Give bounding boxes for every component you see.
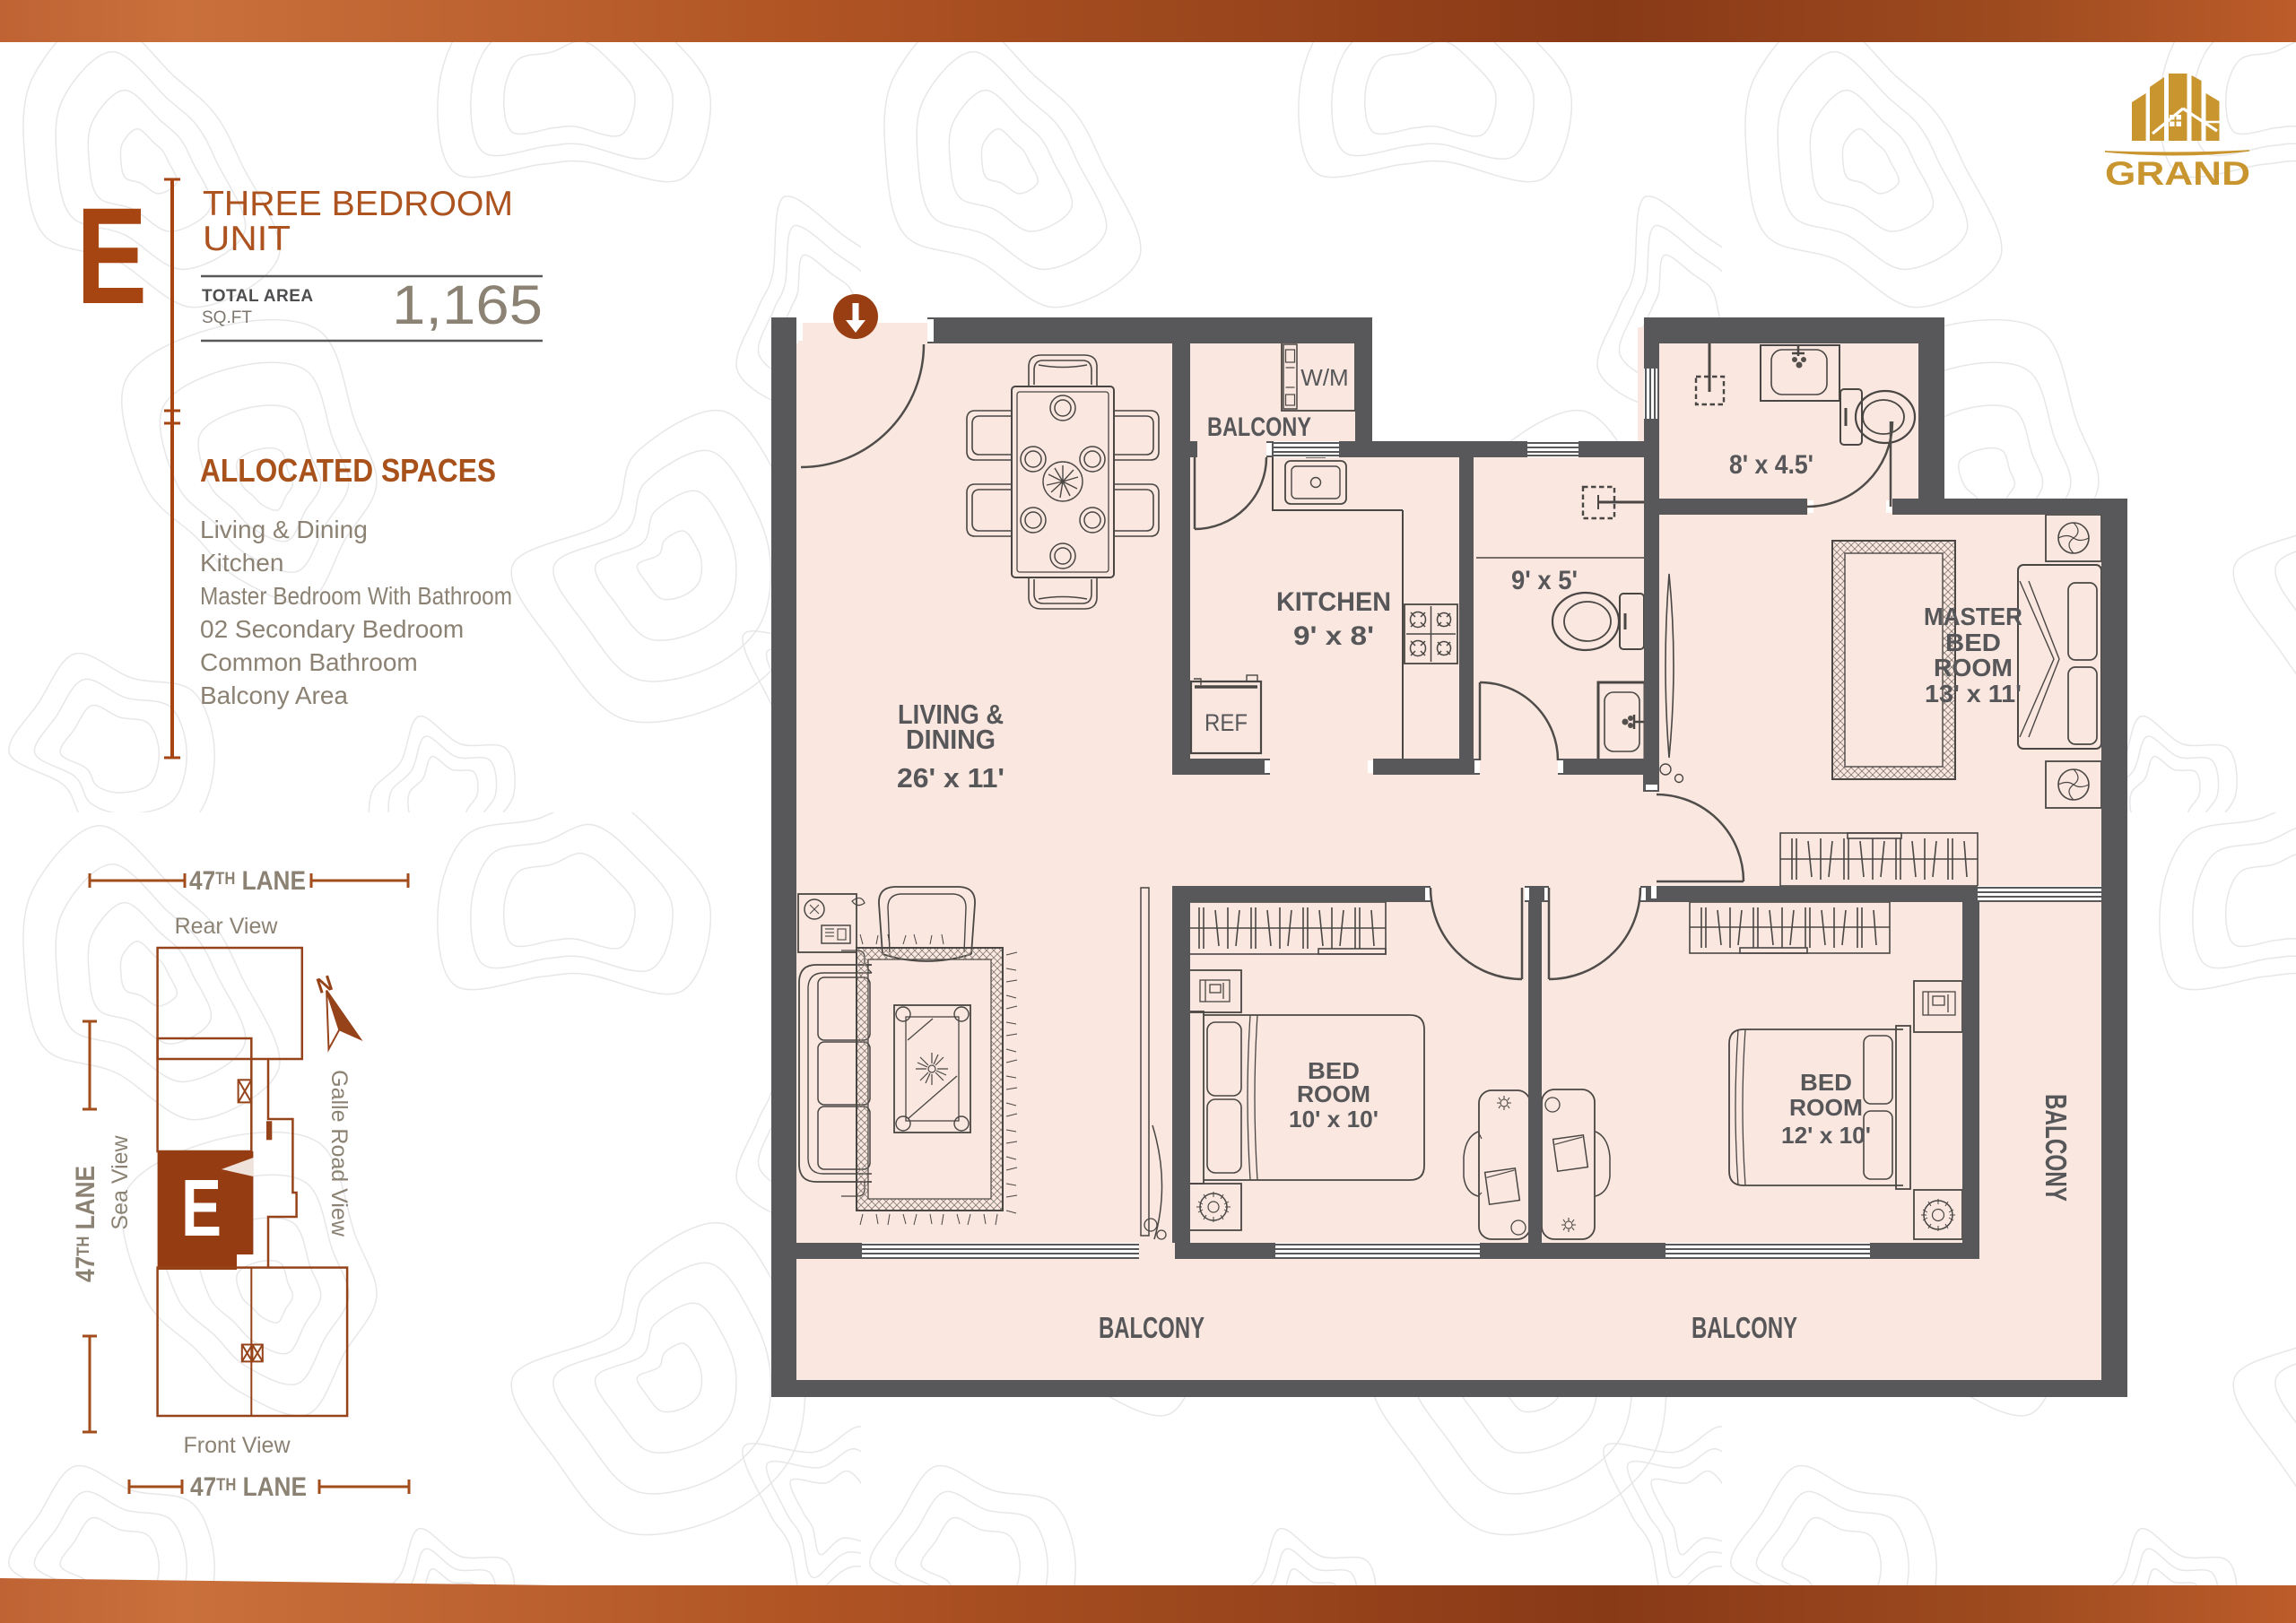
svg-text:9' x 5': 9' x 5'	[1511, 566, 1578, 595]
svg-text:26' x 11': 26' x 11'	[897, 762, 1004, 794]
svg-text:Balcony Area: Balcony Area	[200, 681, 348, 709]
svg-text:Common Bathroom: Common Bathroom	[200, 648, 418, 676]
svg-text:Sea View: Sea View	[108, 1134, 133, 1229]
svg-text:Front View: Front View	[183, 1433, 291, 1458]
svg-text:12' x 10': 12' x 10'	[1781, 1122, 1871, 1149]
svg-text:10' x 10': 10' x 10'	[1289, 1106, 1378, 1133]
svg-text:ROOM: ROOM	[1789, 1094, 1863, 1121]
svg-text:DINING: DINING	[906, 724, 996, 755]
svg-text:1,165: 1,165	[392, 274, 543, 335]
svg-text:Kitchen: Kitchen	[200, 549, 283, 577]
svg-text:BALCONY: BALCONY	[1207, 412, 1311, 442]
svg-text:BALCONY: BALCONY	[1099, 1311, 1205, 1344]
svg-text:ROOM: ROOM	[1297, 1081, 1370, 1107]
svg-text:Galle Road View: Galle Road View	[326, 1070, 352, 1237]
svg-text:Rear View: Rear View	[175, 914, 279, 939]
svg-text:47TH LANE: 47TH LANE	[190, 1472, 307, 1502]
svg-text:GRAND: GRAND	[2105, 155, 2250, 192]
svg-text:UNIT: UNIT	[203, 220, 291, 258]
svg-text:E: E	[181, 1164, 222, 1254]
svg-text:E: E	[76, 179, 147, 333]
svg-text:MASTER: MASTER	[1924, 603, 2022, 630]
svg-text:BED: BED	[1800, 1069, 1852, 1096]
svg-text:SQ.FT: SQ.FT	[202, 308, 252, 327]
svg-text:KITCHEN: KITCHEN	[1276, 587, 1391, 617]
svg-text:02 Secondary Bedroom: 02 Secondary Bedroom	[200, 615, 464, 643]
svg-text:BED: BED	[1945, 629, 2001, 656]
svg-text:Living & Dining: Living & Dining	[200, 516, 368, 543]
svg-text:ROOM: ROOM	[1934, 654, 2013, 681]
svg-text:47TH LANE: 47TH LANE	[71, 1166, 100, 1282]
svg-text:BALCONY: BALCONY	[1692, 1311, 1797, 1344]
svg-text:TOTAL AREA: TOTAL AREA	[202, 287, 314, 306]
svg-text:8' x 4.5': 8' x 4.5'	[1729, 450, 1813, 480]
svg-text:9' x 8': 9' x 8'	[1293, 621, 1374, 651]
svg-text:47TH LANE: 47TH LANE	[189, 866, 306, 896]
svg-text:ALLOCATED SPACES: ALLOCATED SPACES	[200, 452, 496, 489]
svg-text:THREE BEDROOM: THREE BEDROOM	[203, 185, 513, 223]
svg-text:BALCONY: BALCONY	[2039, 1094, 2073, 1202]
svg-text:Master Bedroom With Bathroom: Master Bedroom With Bathroom	[200, 582, 512, 610]
svg-text:REF: REF	[1205, 709, 1248, 736]
svg-text:13' x 11': 13' x 11'	[1925, 680, 2022, 707]
svg-text:W/M: W/M	[1300, 364, 1348, 391]
